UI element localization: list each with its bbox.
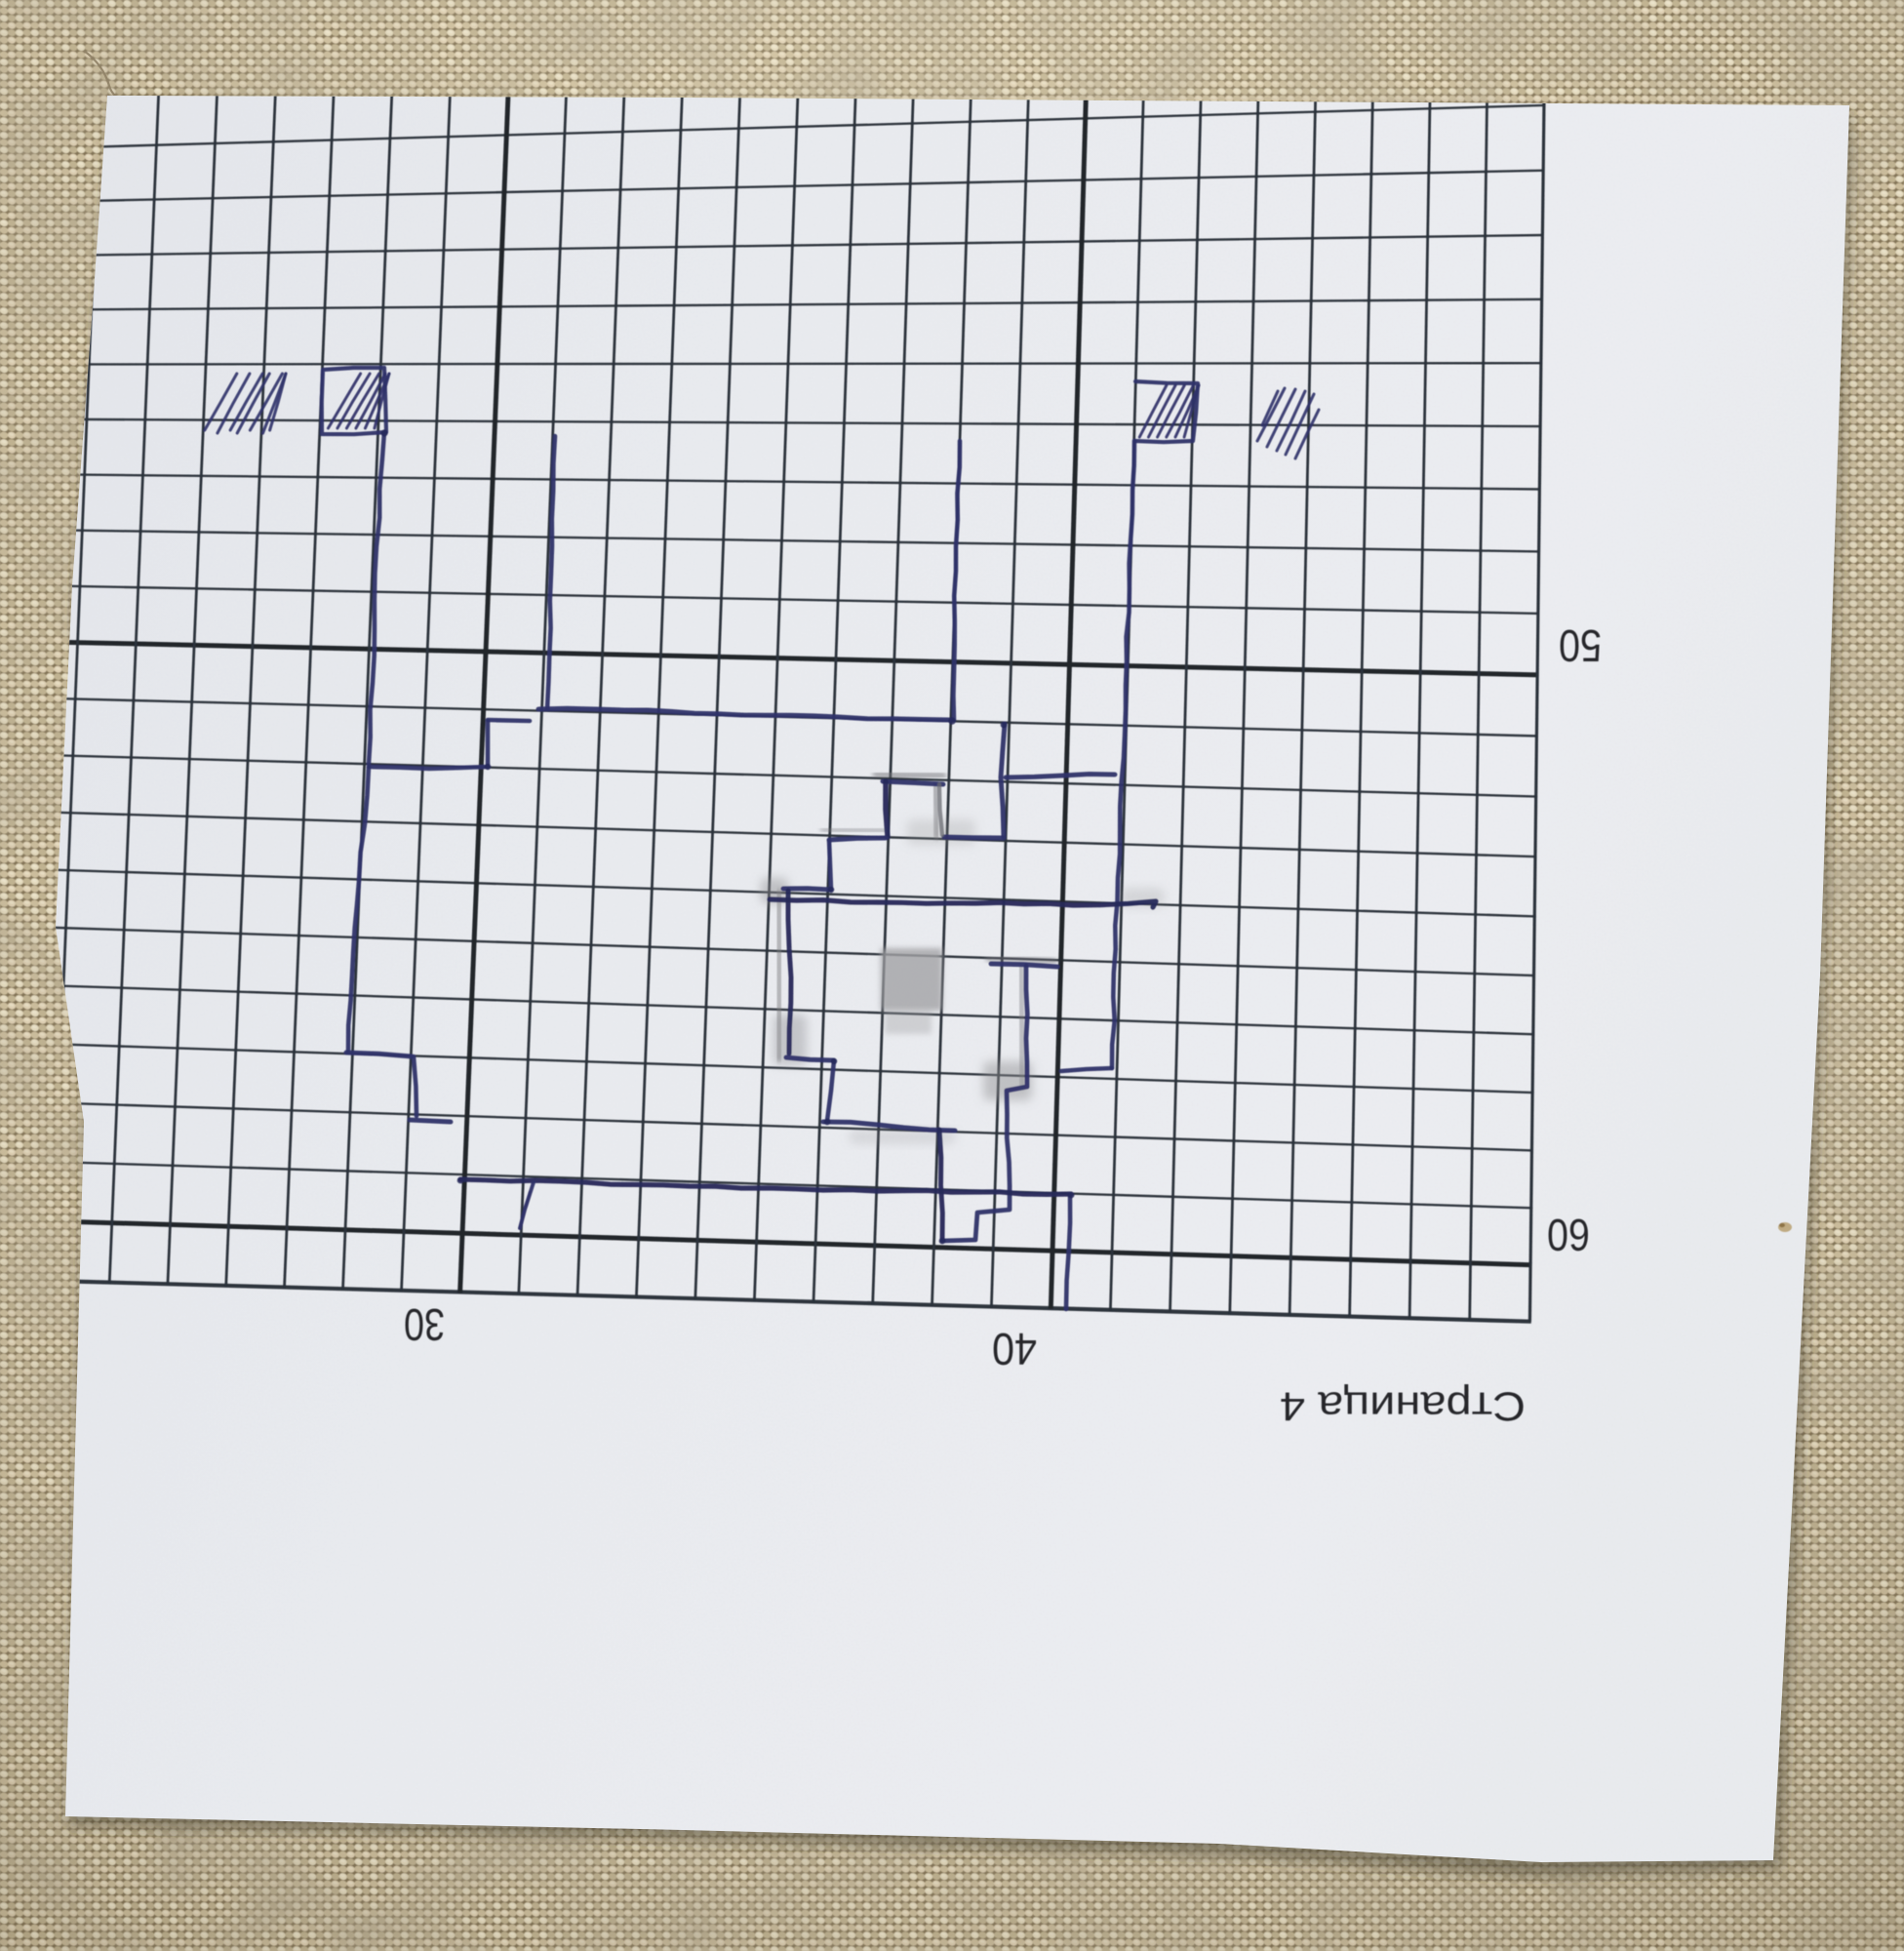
svg-text:60: 60 — [1547, 1210, 1590, 1260]
svg-text:Страница 4: Страница 4 — [1280, 1384, 1526, 1430]
svg-text:40: 40 — [992, 1324, 1037, 1374]
svg-text:50: 50 — [1559, 620, 1602, 671]
svg-text:30: 30 — [404, 1299, 445, 1350]
